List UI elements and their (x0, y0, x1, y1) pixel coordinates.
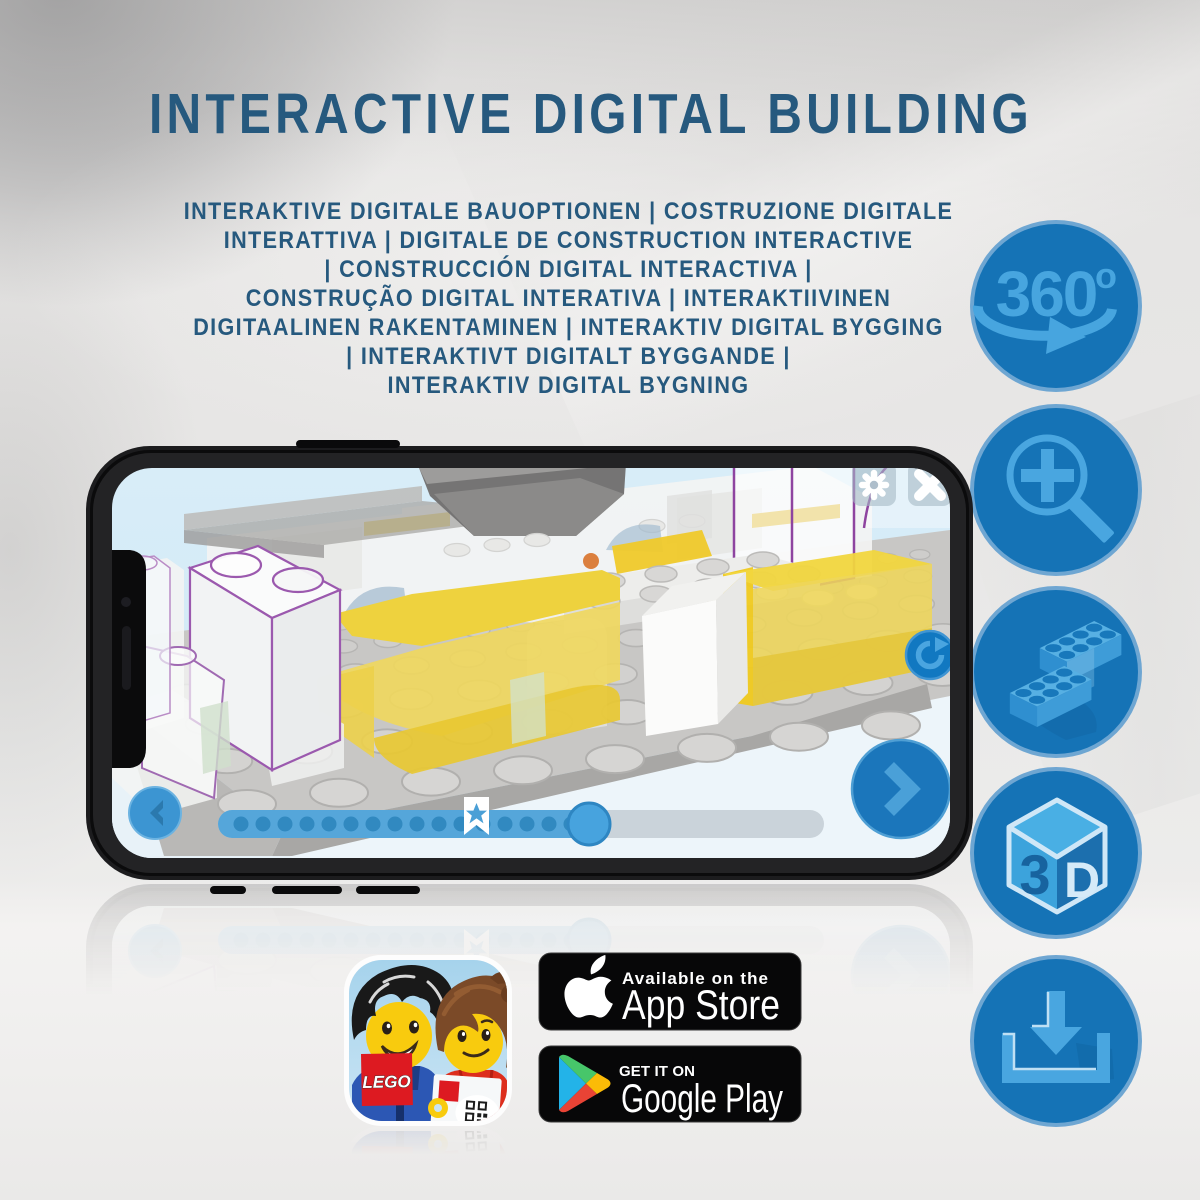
svg-text:o: o (1095, 255, 1117, 296)
svg-text:Google Play: Google Play (621, 1077, 783, 1121)
svg-text:360: 360 (996, 258, 1097, 330)
svg-text:LEGO: LEGO (362, 1072, 410, 1092)
svg-text:3: 3 (1019, 843, 1050, 906)
svg-text:App Store: App Store (622, 981, 780, 1028)
svg-text:D: D (1064, 852, 1100, 908)
